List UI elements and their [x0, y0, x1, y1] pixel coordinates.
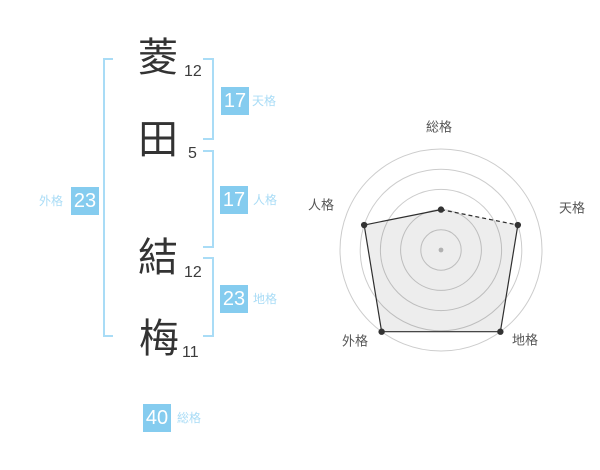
chikaku-label: 地格 — [253, 293, 277, 306]
radar-axis-label: 人格 — [308, 198, 334, 213]
chikaku-bracket — [203, 257, 214, 337]
stroke-count-2: 5 — [188, 146, 197, 162]
gaikaku-bracket — [103, 58, 113, 337]
name-char-3: 結 — [138, 238, 178, 278]
tenkaku-score-badge: 17 — [221, 87, 249, 115]
name-char-2: 田 — [138, 120, 178, 160]
soukaku-label: 総格 — [177, 412, 201, 425]
soukaku-score-badge: 40 — [143, 404, 171, 432]
jinkaku-bracket — [203, 150, 214, 248]
jinkaku-score-badge: 17 — [220, 186, 248, 214]
gaikaku-score-badge: 23 — [71, 187, 99, 215]
radar-axis-label: 天格 — [559, 201, 585, 216]
radar-chart-svg: 総格天格地格外格人格 — [291, 110, 591, 390]
radar-polygon — [361, 206, 521, 335]
name-fortune-panel: 菱 12 田 5 結 12 梅 11 17 天格 17 人格 外格 23 23 … — [0, 0, 600, 470]
stroke-count-3: 12 — [184, 265, 202, 281]
stroke-count-4: 11 — [182, 345, 199, 361]
radar-chart: 総格天格地格外格人格 — [291, 110, 591, 390]
tenkaku-label: 天格 — [252, 95, 276, 108]
chikaku-score-badge: 23 — [220, 285, 248, 313]
radar-axis-label: 総格 — [426, 120, 452, 135]
jinkaku-label: 人格 — [253, 194, 277, 207]
name-char-4: 梅 — [139, 319, 179, 359]
radar-axis-label: 地格 — [512, 333, 538, 348]
gaikaku-label: 外格 — [39, 195, 63, 208]
name-char-1: 菱 — [138, 38, 178, 78]
tenkaku-bracket — [203, 58, 214, 140]
radar-axis-label: 外格 — [342, 334, 368, 349]
stroke-count-1: 12 — [184, 64, 202, 80]
